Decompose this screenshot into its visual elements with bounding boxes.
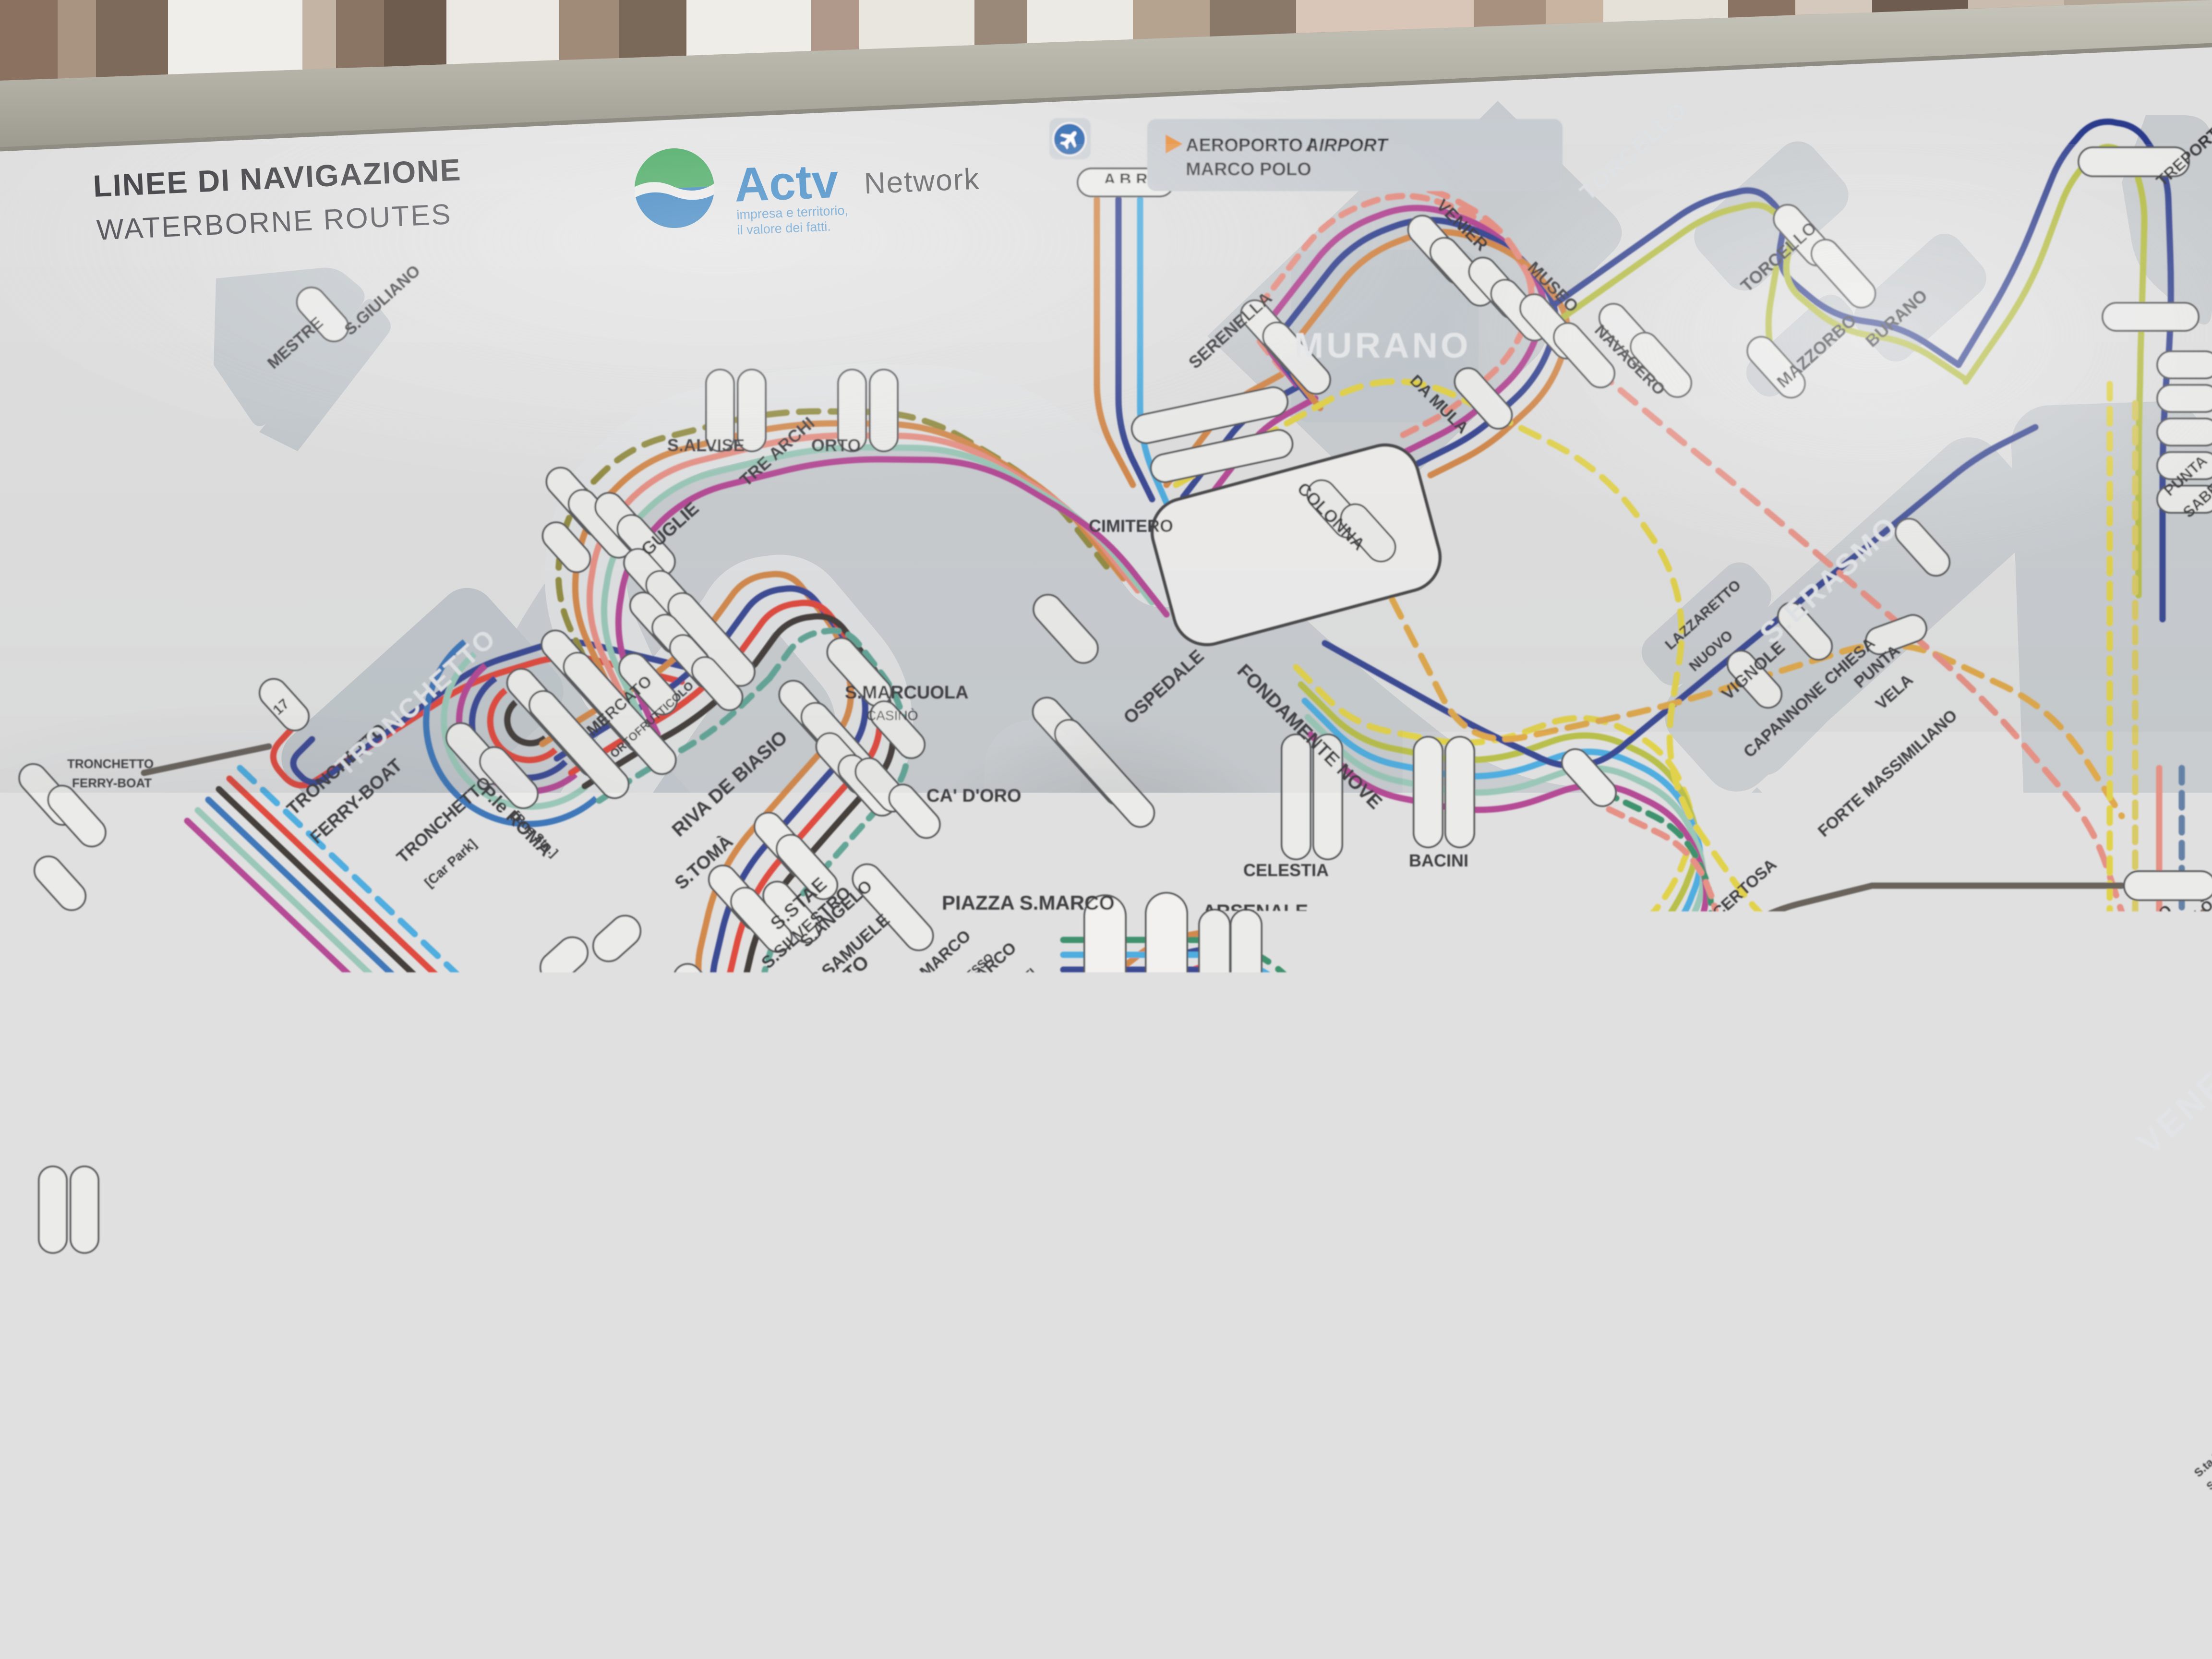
svg-text:Biglietti e prezzi Actv divers: Biglietti e prezzi Actv diversi e dedica… (74, 1471, 445, 1494)
svg-text:Non sono validi i titoli di vi: Non sono validi i titoli di viaggio Actv (73, 1370, 439, 1393)
svg-text:Actv tickets and passes are no: Actv tickets and passes are not valid (73, 1396, 391, 1419)
svg-text://: // (989, 1481, 1000, 1503)
svg-text:Ricordati di consultare gli or: Ricordati di consultare gli orari espost… (607, 1481, 982, 1503)
svg-text:Remember to read the timetable: Remember to read the timetables shown (607, 1509, 953, 1530)
svg-text:Actv pricing different and ded: Actv pricing different and dedicated (74, 1499, 374, 1520)
